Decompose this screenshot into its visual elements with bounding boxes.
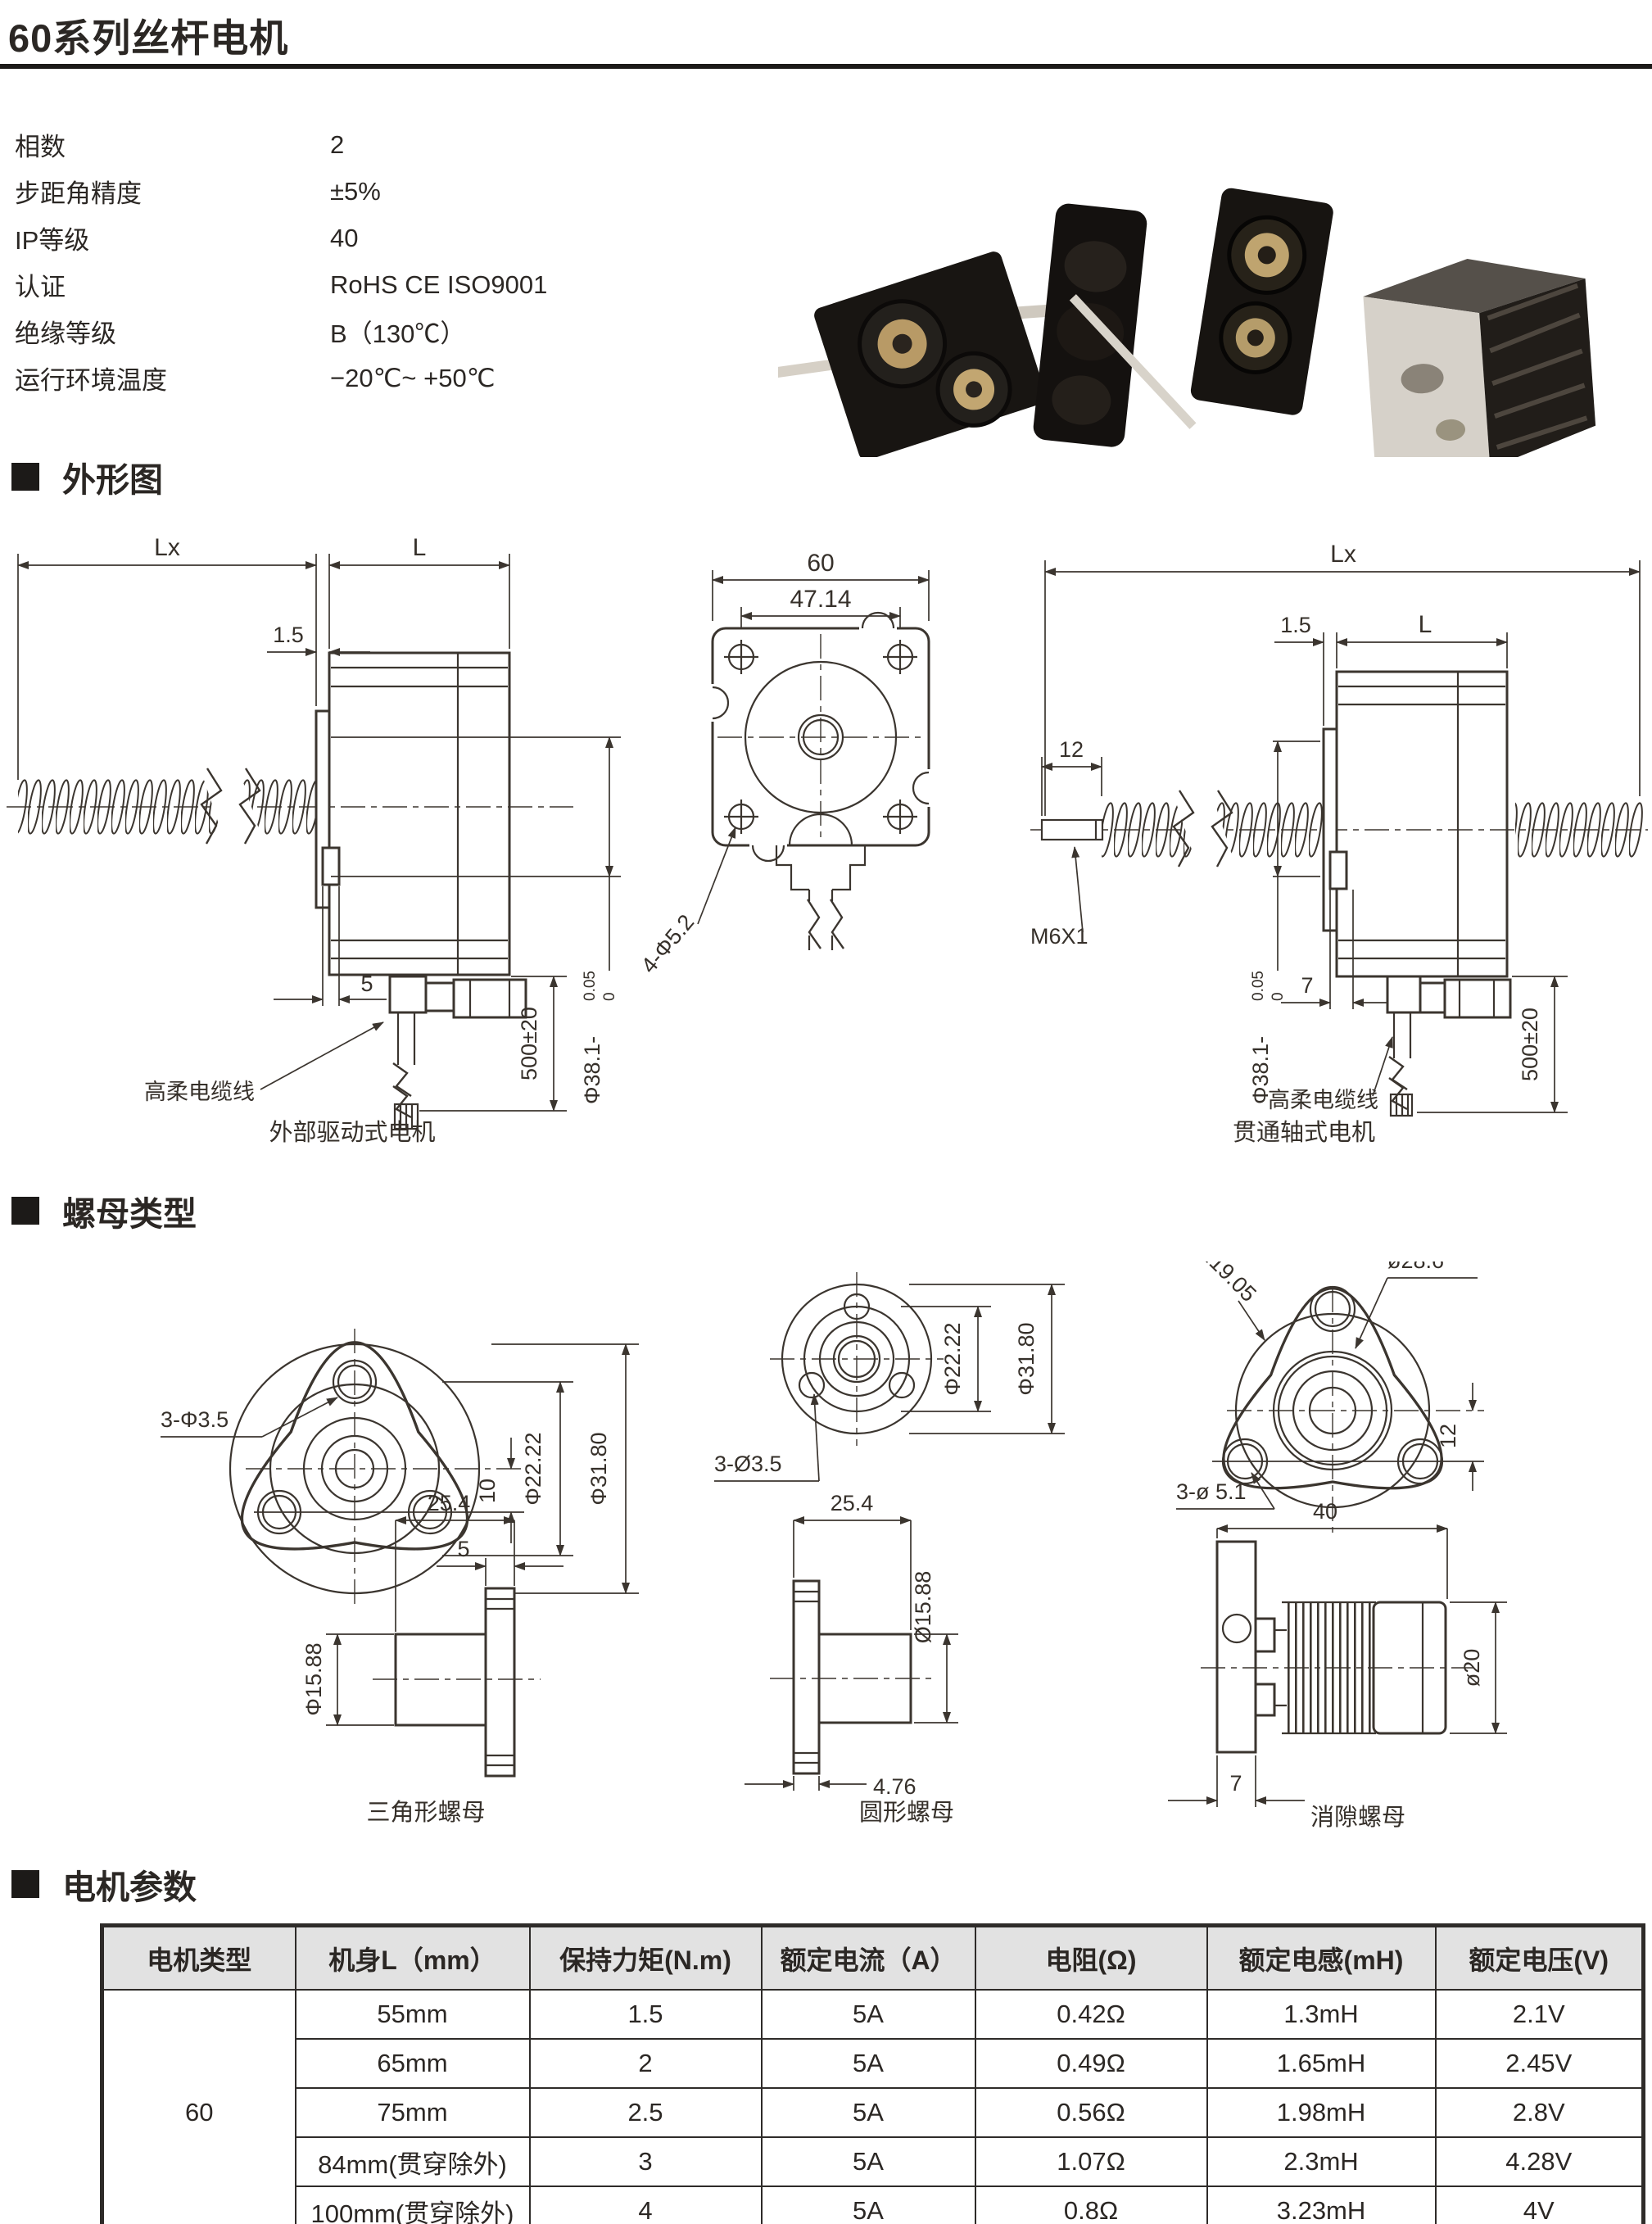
dim-radius: R19.05 <box>1193 1261 1261 1307</box>
cell-resistance: 0.49Ω <box>975 2039 1207 2088</box>
dim-stub: 12 <box>1059 737 1084 762</box>
spec-value: RoHS CE ISO9001 <box>330 270 752 300</box>
dim-od: Φ31.80 <box>586 1432 611 1505</box>
spec-label: 步距角精度 <box>15 173 330 210</box>
section-nuts-heading: 螺母类型 <box>11 1186 197 1235</box>
spec-label: 绝缘等级 <box>15 313 330 350</box>
dim-tab: 5 <box>360 972 373 996</box>
cell-body: 100mm(贯穿除外) <box>296 2186 530 2224</box>
dim-dia-tol-top: 0 <box>1270 992 1287 1001</box>
dim-dia: Φ38.1- <box>580 1036 604 1104</box>
threaded-stub <box>1042 820 1102 840</box>
label-holes: 3-ø 5.1 <box>1176 1479 1247 1504</box>
cell-motor-type: 60 <box>102 1990 296 2224</box>
table-row: 60 55mm 1.5 5A 0.42Ω 1.3mH 2.1V <box>102 1990 1644 2039</box>
cell-body: 75mm <box>296 2088 530 2137</box>
dim-offset: 1.5 <box>1280 613 1311 637</box>
col-header-motor-type: 电机类型 <box>102 1926 296 1991</box>
nut-drawings: 10 Φ22.22 Φ31.80 3-Φ3.5 25.4 5 <box>0 1261 1652 1884</box>
motor-body <box>1337 672 1507 976</box>
cell-current: 5A <box>762 2039 975 2088</box>
cell-current: 5A <box>762 2088 975 2137</box>
col-header-rated-current: 额定电流（A） <box>762 1926 975 1991</box>
cell-current: 5A <box>762 1990 975 2039</box>
spec-row: IP等级40 <box>15 215 752 261</box>
dim-length: 25.4 <box>831 1491 874 1515</box>
spec-row: 运行环境温度−20℃~ +50℃ <box>15 355 752 401</box>
dim-od: ø28.6 <box>1387 1261 1444 1273</box>
table-row: 75mm 2.5 5A 0.56Ω 1.98mH 2.8V <box>102 2088 1644 2137</box>
section-bullet-icon <box>11 463 39 491</box>
cell-torque: 4 <box>530 2186 762 2224</box>
section-outline-title: 外形图 <box>62 452 163 501</box>
product-photo <box>778 116 1648 457</box>
spec-value: 2 <box>330 130 752 160</box>
dim-length: 40 <box>1313 1499 1337 1524</box>
cable-assembly <box>390 976 526 1129</box>
dim-dia-tol-bot: 0.05 <box>582 971 599 1001</box>
cell-inductance: 1.3mH <box>1207 1990 1436 2039</box>
spec-label: 运行环境温度 <box>15 360 330 396</box>
lead-screw-right <box>1515 800 1643 859</box>
motor-parameter-table: 电机类型 机身L（mm） 保持力矩(N.m) 额定电流（A） 电阻(Ω) 额定电… <box>100 1923 1645 2224</box>
cell-voltage: 2.1V <box>1436 1990 1644 2039</box>
outline-drawings: Lx L 1.5 Φ38.1- 0 0.05 5 <box>0 524 1652 1163</box>
table-row: 100mm(贯穿除外) 4 5A 0.8Ω 3.23mH 4V <box>102 2186 1644 2224</box>
page-title: 60系列丝杆电机 <box>8 7 288 63</box>
datasheet-page: 60系列丝杆电机 相数2 步距角精度±5% IP等级40 认证RoHS CE I… <box>0 0 1652 2224</box>
title-rule <box>0 64 1652 69</box>
cell-torque: 1.5 <box>530 1990 762 2039</box>
nut-flange <box>1217 1542 1256 1752</box>
dim-flange: 5 <box>457 1537 469 1561</box>
section-bullet-icon <box>11 1870 39 1898</box>
cell-resistance: 0.8Ω <box>975 2186 1207 2224</box>
cell-voltage: 2.8V <box>1436 2088 1644 2137</box>
cell-resistance: 0.56Ω <box>975 2088 1207 2137</box>
dim-offset: 1.5 <box>273 623 304 647</box>
dim-dia: Ø15.88 <box>911 1571 935 1644</box>
drawing-triangle-nut: 10 Φ22.22 Φ31.80 3-Φ3.5 25.4 5 <box>161 1329 639 1826</box>
dim-l: L <box>413 534 427 561</box>
dim-bcd: Φ22.22 <box>521 1432 545 1505</box>
spec-label: IP等级 <box>15 220 330 256</box>
dim-lx: Lx <box>1330 541 1356 568</box>
dim-corner-holes: 4-Φ5.2 <box>636 910 699 978</box>
spec-row: 绝缘等级B（130℃） <box>15 308 752 355</box>
cable-label: 高柔电缆线 <box>144 1080 255 1104</box>
label-holes: 3-Ø3.5 <box>714 1452 782 1476</box>
cell-current: 5A <box>762 2137 975 2186</box>
dim-lx: Lx <box>154 534 180 561</box>
nut-flange <box>486 1588 514 1776</box>
drawing-front-view: 60 47.14 4-Φ5.2 <box>636 550 932 978</box>
dim-flange: 7 <box>1229 1771 1242 1796</box>
section-params-title: 电机参数 <box>62 1859 197 1909</box>
dim-dia-tol-top: 0 <box>601 992 618 1001</box>
caption-backlash-nut: 消隙螺母 <box>1310 1804 1405 1831</box>
cable-assembly <box>1387 976 1510 1116</box>
cell-body: 84mm(贯穿除外) <box>296 2137 530 2186</box>
cell-body: 55mm <box>296 1990 530 2039</box>
cell-current: 5A <box>762 2186 975 2224</box>
cell-resistance: 0.42Ω <box>975 1990 1207 2039</box>
table-header-row: 电机类型 机身L（mm） 保持力矩(N.m) 额定电流（A） 电阻(Ω) 额定电… <box>102 1926 1644 1991</box>
spec-value: 40 <box>330 224 752 253</box>
caption-triangle-nut: 三角形螺母 <box>366 1799 485 1826</box>
caption-round-nut: 圆形螺母 <box>859 1799 954 1826</box>
cell-resistance: 1.07Ω <box>975 2137 1207 2186</box>
col-header-voltage: 额定电压(V) <box>1436 1926 1644 1991</box>
dim-cable-length: 500±20 <box>517 1007 541 1080</box>
spec-value: ±5% <box>330 177 752 206</box>
drawing-through-motor: Lx 1.5 L 12 M6X1 Φ38.1- 0 0.05 7 <box>1030 541 1648 1146</box>
drawing-external-motor: Lx L 1.5 Φ38.1- 0 0.05 5 <box>7 534 621 1146</box>
cell-inductance: 2.3mH <box>1207 2137 1436 2186</box>
caption-through-motor: 贯通轴式电机 <box>1233 1119 1375 1146</box>
dim-dia: ø20 <box>1460 1649 1484 1687</box>
nut-flange <box>794 1581 819 1773</box>
cell-torque: 3 <box>530 2137 762 2186</box>
cell-inductance: 3.23mH <box>1207 2186 1436 2224</box>
spec-value: −20℃~ +50℃ <box>330 364 752 393</box>
spec-row: 相数2 <box>15 121 752 168</box>
motor-body <box>329 653 509 975</box>
drawing-backlash-nut: R19.05 ø28.6 12 3-ø 5.1 40 <box>1168 1261 1507 1831</box>
dim-dia-tol-bot: 0.05 <box>1250 971 1267 1001</box>
cell-inductance: 1.98mH <box>1207 2088 1436 2137</box>
col-header-inductance: 额定电感(mH) <box>1207 1926 1436 1991</box>
cell-body: 65mm <box>296 2039 530 2088</box>
cell-inductance: 1.65mH <box>1207 2039 1436 2088</box>
spec-label: 认证 <box>15 266 330 303</box>
col-header-holding-torque: 保持力矩(N.m) <box>530 1926 762 1991</box>
dim-tab: 7 <box>1301 973 1313 998</box>
label-holes: 3-Φ3.5 <box>161 1407 229 1432</box>
dim-pitch: 12 <box>1436 1424 1460 1448</box>
table-row: 84mm(贯穿除外) 3 5A 1.07Ω 2.3mH 4.28V <box>102 2137 1644 2186</box>
dim-bcd: Φ22.22 <box>940 1322 965 1395</box>
cell-torque: 2.5 <box>530 2088 762 2137</box>
col-header-resistance: 电阻(Ω) <box>975 1926 1207 1991</box>
section-params-heading: 电机参数 <box>11 1859 197 1909</box>
cell-voltage: 2.45V <box>1436 2039 1644 2088</box>
cell-torque: 2 <box>530 2039 762 2088</box>
spec-value: B（130℃） <box>330 313 752 350</box>
cable-label: 高柔电缆线 <box>1268 1088 1378 1112</box>
lead-screw <box>18 777 321 836</box>
cell-voltage: 4.28V <box>1436 2137 1644 2186</box>
section-nuts-title: 螺母类型 <box>62 1186 197 1235</box>
dim-hole-spacing: 47.14 <box>790 586 851 613</box>
section-outline-heading: 外形图 <box>11 452 163 501</box>
spec-row: 认证RoHS CE ISO9001 <box>15 261 752 308</box>
thread-label: M6X1 <box>1030 924 1089 949</box>
cell-voltage: 4V <box>1436 2186 1644 2224</box>
dim-l: L <box>1419 611 1432 638</box>
dim-length: 25.4 <box>428 1491 471 1515</box>
dim-dia: Φ15.88 <box>301 1642 326 1715</box>
dim-od: Φ31.80 <box>1014 1322 1039 1395</box>
drawing-round-nut: Φ22.22 Φ31.80 3-Ø3.5 25.4 Ø15.88 4.76 圆形… <box>714 1272 1065 1826</box>
dim-face-width: 60 <box>807 550 834 577</box>
dim-flange: 4.76 <box>873 1774 917 1799</box>
caption-external-motor: 外部驱动式电机 <box>269 1119 435 1146</box>
table-row: 65mm 2 5A 0.49Ω 1.65mH 2.45V <box>102 2039 1644 2088</box>
spec-label: 相数 <box>15 126 330 163</box>
section-bullet-icon <box>11 1197 39 1225</box>
dim-pitch: 10 <box>475 1479 500 1503</box>
dim-cable-length: 500±20 <box>1518 1008 1542 1081</box>
col-header-body-length: 机身L（mm） <box>296 1926 530 1991</box>
spec-list: 相数2 步距角精度±5% IP等级40 认证RoHS CE ISO9001 绝缘… <box>15 121 752 401</box>
spec-row: 步距角精度±5% <box>15 168 752 215</box>
